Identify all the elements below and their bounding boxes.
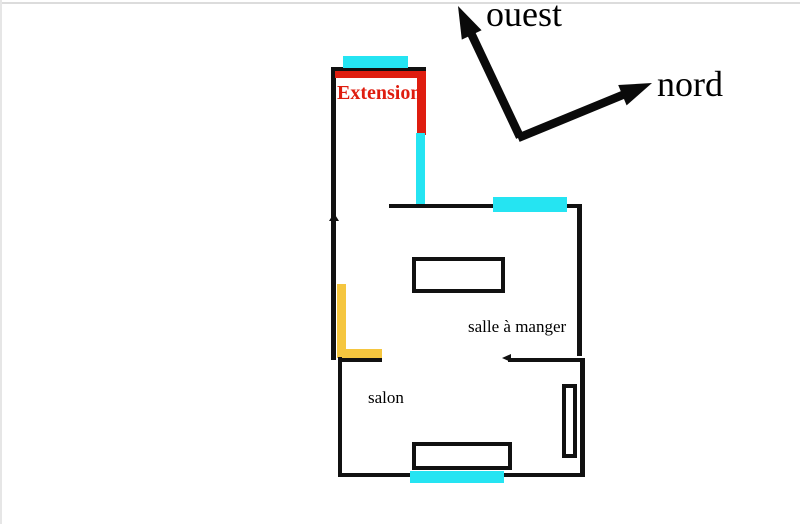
wall-dining-salon-right-segment [508, 358, 585, 363]
window-dining-top [493, 197, 567, 212]
salon-sofa [412, 442, 512, 470]
wall-arrow-up-icon [329, 213, 339, 221]
wall-salon-right [580, 360, 585, 478]
compass-north-label: nord [657, 66, 723, 102]
wall-end-arrow-icon [502, 354, 511, 362]
side-furniture [562, 384, 578, 458]
yellow-wall-horizontal [337, 349, 383, 358]
dining-room-label: salle à manger [468, 318, 566, 335]
wall-dining-salon-left-segment [338, 358, 382, 363]
compass-west-label: ouest [486, 0, 562, 32]
window-salon-bottom [410, 471, 504, 483]
compass-north-arrow [518, 83, 652, 138]
yellow-wall-vertical [337, 284, 346, 358]
wall-dining-right [577, 204, 582, 357]
window-extension-right [416, 133, 425, 205]
extension-room-label: Extension [337, 83, 421, 103]
red-wall-extension-top [335, 71, 425, 78]
floor-plan-canvas: ouest nord Extension salle à manger salo… [0, 0, 800, 524]
dining-table [412, 257, 505, 293]
wall-salon-left [338, 357, 343, 477]
living-room-label: salon [368, 389, 404, 406]
window-extension-top [343, 56, 408, 68]
